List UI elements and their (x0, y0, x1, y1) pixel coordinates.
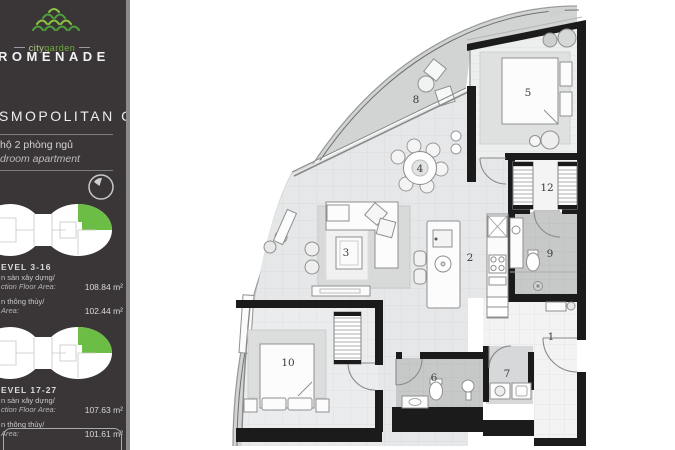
area-value: 108.84 m² (85, 282, 123, 292)
room-label-6: 6 (431, 372, 438, 384)
room-label-1: 1 (548, 331, 555, 343)
compass-icon (86, 172, 116, 202)
brand-name: ROMENADE (0, 49, 110, 64)
area-row: n sàn xây dựng/ ction Floor Area: 108.84… (1, 273, 125, 295)
room-label-8: 8 (413, 94, 420, 106)
divider (0, 134, 113, 135)
divider (0, 170, 113, 171)
room-label-4: 4 (417, 163, 424, 175)
floor-plan: 1234567891012 (130, 0, 675, 450)
area-row: n sàn xây dựng/ ction Floor Area: 107.63… (1, 396, 125, 418)
outline-frame (3, 428, 122, 450)
brand-dash-left (14, 47, 25, 48)
level-label: EVEL 3-16 (1, 262, 51, 272)
unit-title: SMOPOLITAN C (0, 108, 130, 124)
unit-subtitle-vi: hộ 2 phòng ngủ (0, 139, 73, 151)
level-label: EVEL 17-27 (1, 385, 57, 395)
sidebar: citygarden ROMENADE SMOPOLITAN C hộ 2 ph… (0, 0, 130, 450)
entry-floor (534, 300, 577, 440)
room-label-5: 5 (525, 87, 532, 99)
citygarden-waves-icon (24, 4, 84, 36)
room-label-10: 10 (281, 357, 294, 369)
floorplate-diagram (0, 324, 120, 382)
unit-subtitle-en: droom apartment (0, 153, 80, 165)
level-block-3-16: EVEL 3-16 n sàn xây dựng/ ction Floor Ar… (0, 201, 126, 323)
living-furniture (305, 202, 410, 296)
room-label-12: 12 (540, 182, 553, 194)
floorplate-diagram (0, 201, 120, 259)
area-value: 107.63 m² (85, 405, 123, 415)
highlighted-unit (78, 327, 112, 353)
room-label-7: 7 (504, 368, 511, 380)
room-label-2: 2 (467, 252, 474, 264)
page: citygarden ROMENADE SMOPOLITAN C hộ 2 ph… (0, 0, 675, 450)
room-label-3: 3 (343, 247, 350, 259)
highlighted-unit (78, 204, 112, 230)
area-value: 102.44 m² (85, 306, 123, 316)
entry-fixtures (546, 302, 575, 311)
room-label-9: 9 (547, 248, 554, 260)
brand-dash-right (79, 47, 90, 48)
utility-fixtures (490, 383, 531, 399)
area-row: n thông thủy/ Area: 102.44 m² (1, 297, 125, 319)
